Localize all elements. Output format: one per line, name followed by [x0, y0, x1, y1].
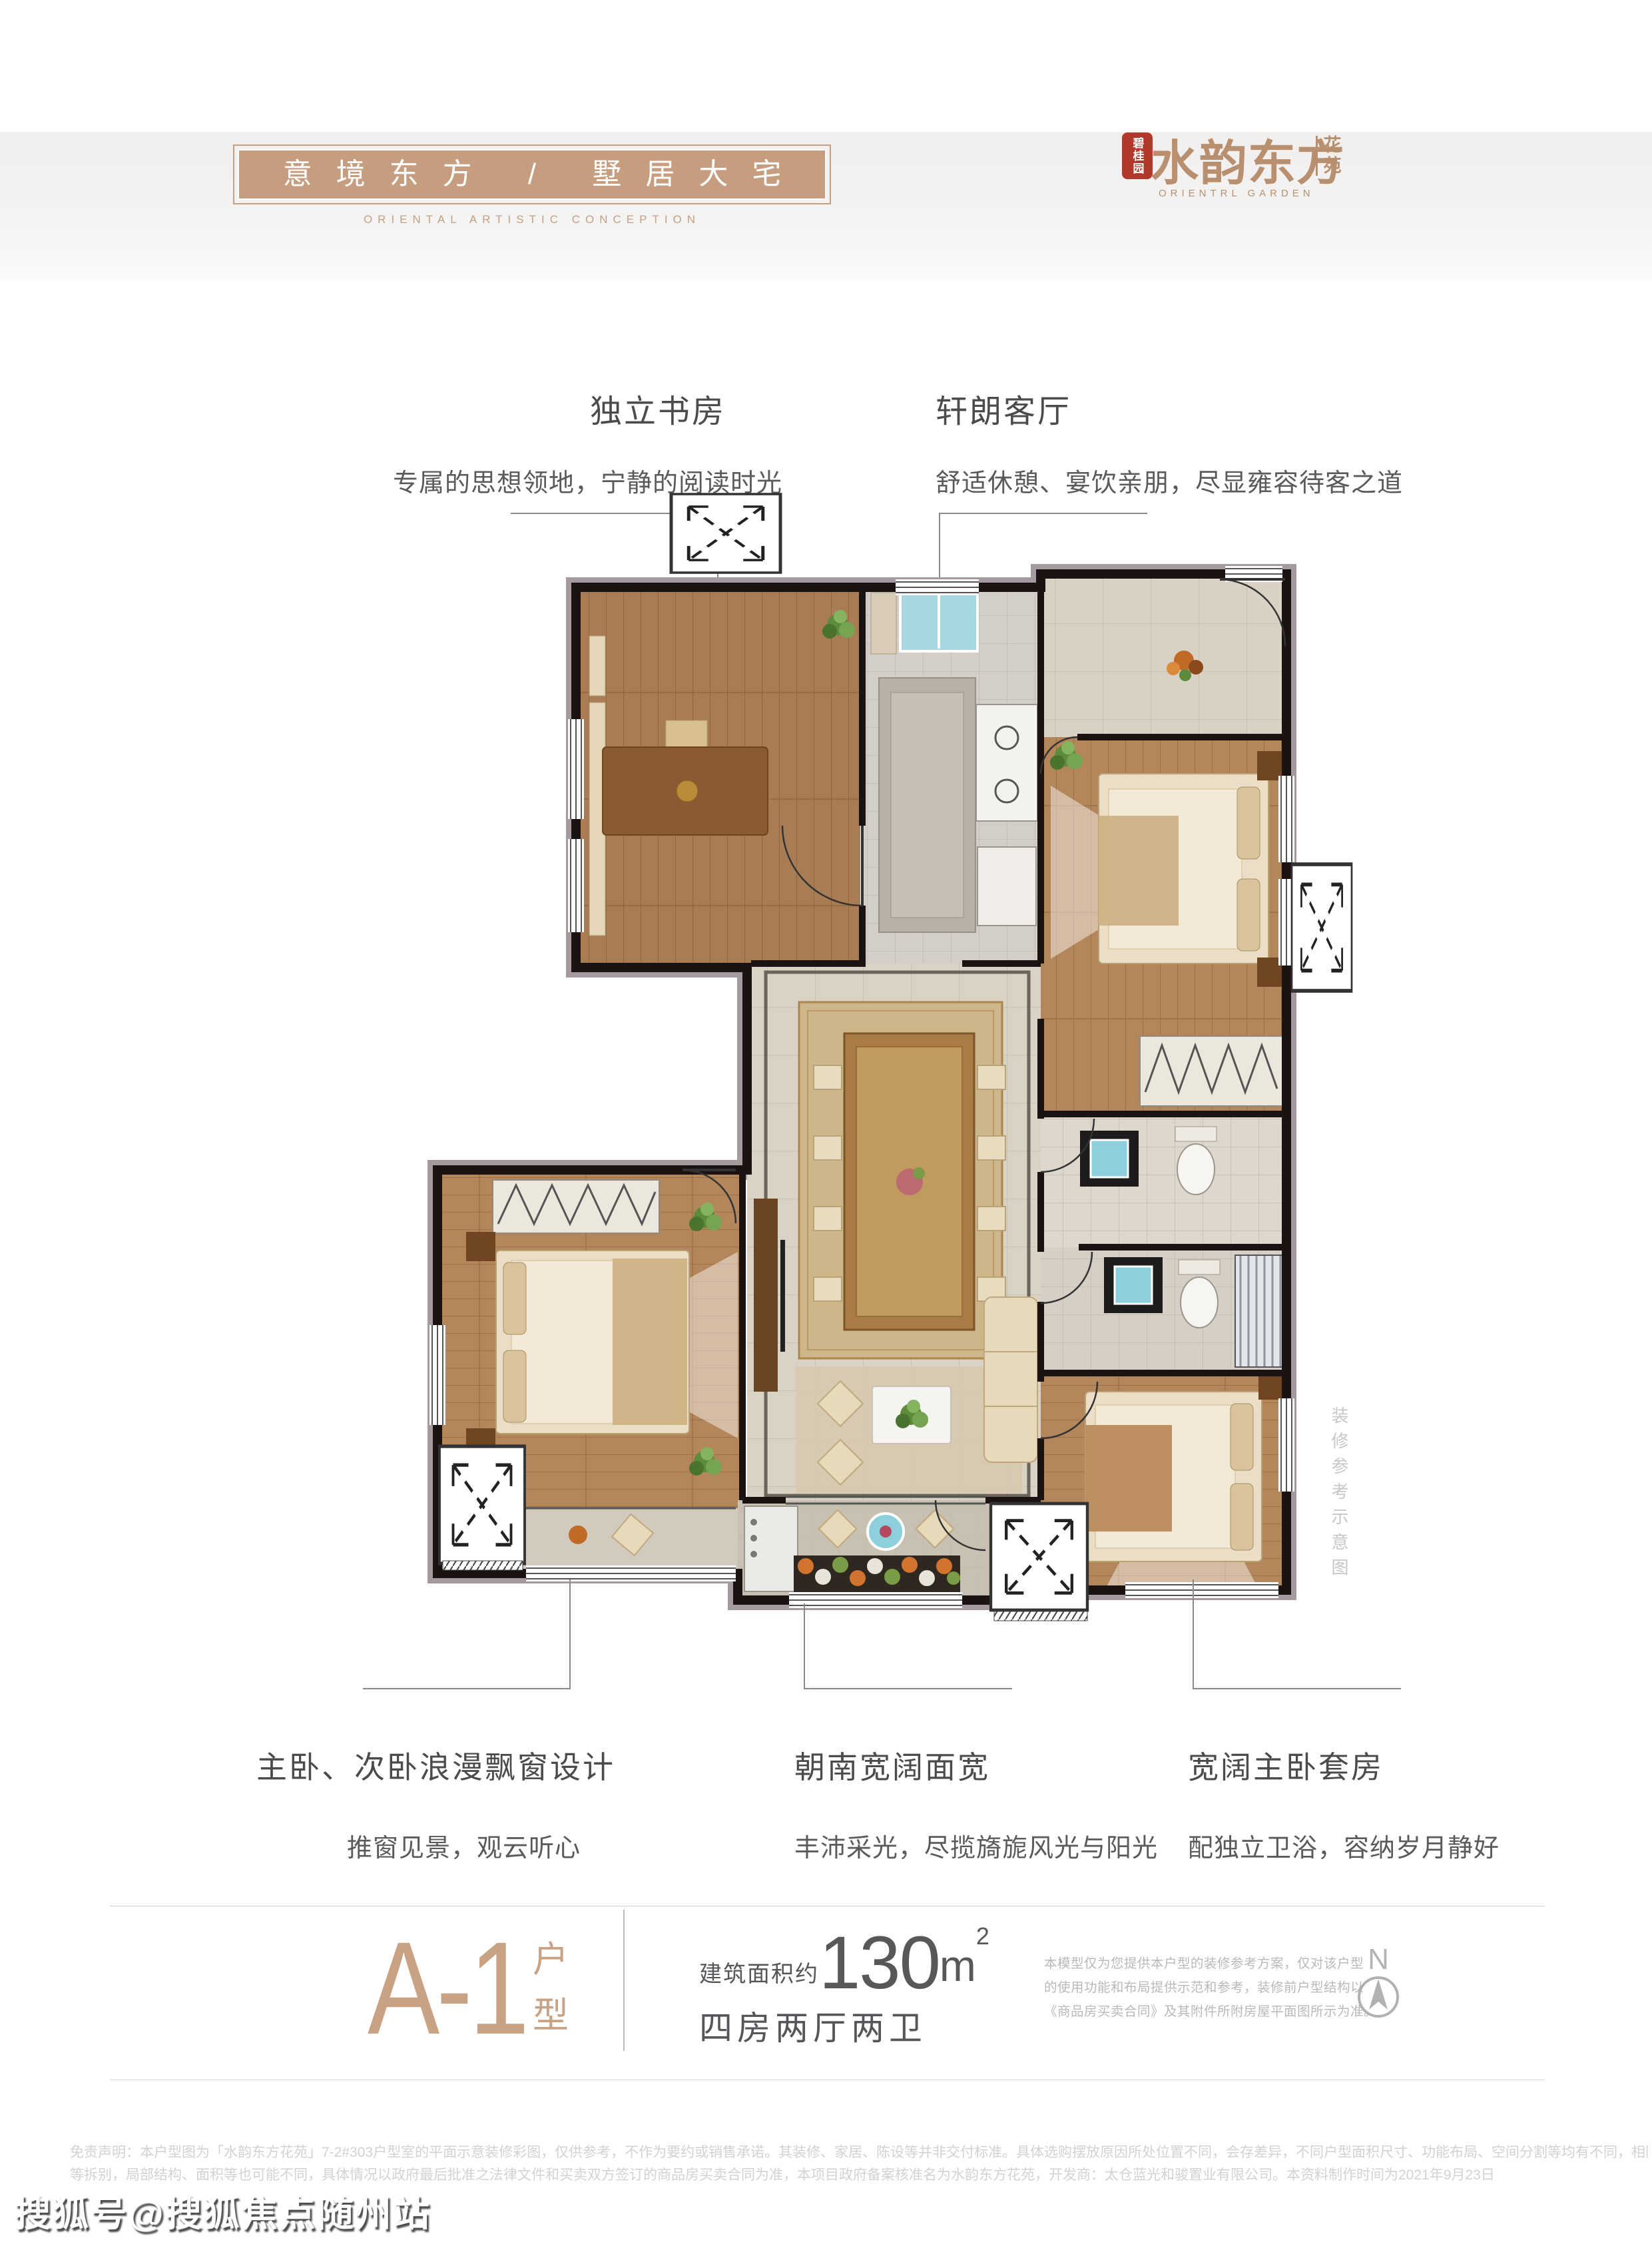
sofa: [984, 1297, 1037, 1462]
brand-divider: [1316, 136, 1318, 176]
callout-study-title: 独立书房: [459, 385, 726, 431]
callout-south-desc: 丰沛采光，尽揽旖旎风光与阳光: [794, 1827, 1158, 1864]
window: [526, 1565, 736, 1581]
unit-suffix-char-1: 户: [533, 1930, 573, 1982]
window: [789, 1592, 962, 1608]
leader-line: [569, 1579, 571, 1688]
kitchen-fridge: [977, 847, 1036, 926]
model-note-line3: 《商品房买卖合同》及其附件所附房屋平面图所示为准。: [1044, 2000, 1324, 2020]
callout-baywindow-title: 主卧、次卧浪漫飘窗设计: [256, 1743, 615, 1787]
toilet-tank: [1179, 1260, 1220, 1274]
brand-seal-icon: 碧桂园: [1123, 133, 1152, 178]
flower-bed: [794, 1555, 960, 1593]
leader-line: [363, 1688, 571, 1689]
info-divider: [623, 1910, 625, 2051]
vent-grille: [443, 1561, 523, 1570]
brand-seal-text: 碧桂园: [1129, 137, 1146, 175]
ac-unit-icon: [439, 1446, 525, 1563]
brand-name: 水韵东方: [1151, 124, 1314, 181]
model-note-line1: 本模型仅为您提供本户型的装修参考方案，仅对该户型: [1044, 1952, 1324, 1972]
area-unit: m: [940, 1935, 976, 1996]
brand-suffix: 花苑: [1322, 135, 1342, 176]
separator-line: [110, 2080, 1545, 2080]
disclaimer-line2: 等拆别，局部结构、面积等也可能不同，具体情况以政府最后批准之法律文件和买卖双方签…: [70, 2164, 1648, 2184]
brand-subtitle: ORIENTRL GARDEN: [1159, 188, 1336, 199]
pillow: [1231, 1484, 1253, 1550]
ac-unit-icon: [991, 1504, 1087, 1610]
window: [568, 719, 584, 819]
callout-mastersuite-desc: 配独立卫浴，容纳岁月静好: [1188, 1827, 1500, 1864]
window: [896, 579, 979, 595]
leader-line: [1193, 1688, 1401, 1689]
area-label: 建筑面积约: [699, 1956, 819, 1996]
vent-grille: [994, 1611, 1087, 1621]
compass-north-label: N: [1356, 1943, 1401, 1976]
kitchen-cabinet: [871, 593, 896, 654]
pillow: [1237, 879, 1260, 951]
compass-icon: [1356, 1975, 1400, 2019]
separator-line: [110, 1906, 1545, 1906]
callout-south-title: 朝南宽阔面宽: [794, 1743, 990, 1787]
pillow: [503, 1262, 526, 1334]
bedroom2-blanket: [1099, 816, 1179, 926]
toilet: [1181, 1277, 1218, 1328]
pillow: [1231, 1404, 1253, 1470]
window: [1125, 1582, 1278, 1598]
kitchen-stove: [976, 704, 1037, 821]
bedroom3-blanket: [613, 1259, 687, 1425]
window: [568, 839, 584, 932]
pillow: [1237, 787, 1260, 859]
callout-living-title: 轩朗客厅: [936, 385, 1071, 431]
window: [1278, 1398, 1294, 1492]
nightstand: [466, 1232, 495, 1261]
floor-plan: [373, 459, 1372, 1658]
watermark: 搜狐号@搜狐焦点随州站: [15, 2184, 431, 2237]
desk-ornament: [677, 780, 698, 802]
unit-code: A-1: [368, 1912, 499, 2046]
nightstand: [1258, 1373, 1284, 1400]
plan-side-note: 装修参考示意图: [1327, 1406, 1352, 1583]
banner-subtitle: ORIENTAL ARTISTIC CONCEPTION: [238, 213, 826, 226]
shower: [1235, 1255, 1283, 1367]
tv: [780, 1240, 785, 1352]
ac-unit-icon: [1292, 864, 1352, 991]
bath1-sink: [1091, 1140, 1128, 1177]
master-blanket: [1085, 1425, 1172, 1532]
layout-text: 四房两厅两卫: [699, 2002, 927, 2050]
study-cabinet: [589, 636, 605, 696]
window: [1278, 776, 1294, 862]
unit-suffix-char-2: 型: [533, 1986, 573, 2038]
study-chair: [666, 720, 707, 747]
banner-title: 意境东方 / 墅居大宅: [239, 150, 825, 198]
poster-page: 意境东方 / 墅居大宅 ORIENTAL ARTISTIC CONCEPTION…: [0, 0, 1652, 2242]
bath2-sink: [1115, 1266, 1152, 1304]
title-banner: 意境东方 / 墅居大宅: [238, 149, 826, 200]
leader-line: [1193, 1579, 1194, 1689]
toilet-tank: [1175, 1127, 1217, 1141]
pillow: [503, 1350, 526, 1422]
area-row: 建筑面积约 130 m 2: [699, 1923, 1032, 1996]
ac-unit-icon: [671, 494, 780, 573]
callout-baywindow-desc: 推窗见景，观云听心: [314, 1827, 581, 1864]
leader-line: [804, 1603, 805, 1689]
window: [429, 1325, 445, 1425]
toilet: [1177, 1144, 1215, 1195]
disclaimer-line1: 免责声明：本户型图为「水韵东方花苑」7-2#303户型室的平面示意装修彩图，仅供…: [70, 2141, 1648, 2161]
bay-flower-icon: [569, 1526, 587, 1544]
callout-mastersuite-title: 宽阔主卧套房: [1188, 1743, 1384, 1787]
area-superscript: 2: [976, 1923, 989, 1948]
tv-console: [754, 1199, 778, 1392]
model-note-line2: 的使用功能和布局提供示范和参考，装修前户型结构以: [1044, 1976, 1324, 1996]
leader-line: [804, 1688, 1012, 1689]
laundry-unit: [744, 1506, 798, 1591]
area-value: 130: [819, 1930, 940, 1996]
